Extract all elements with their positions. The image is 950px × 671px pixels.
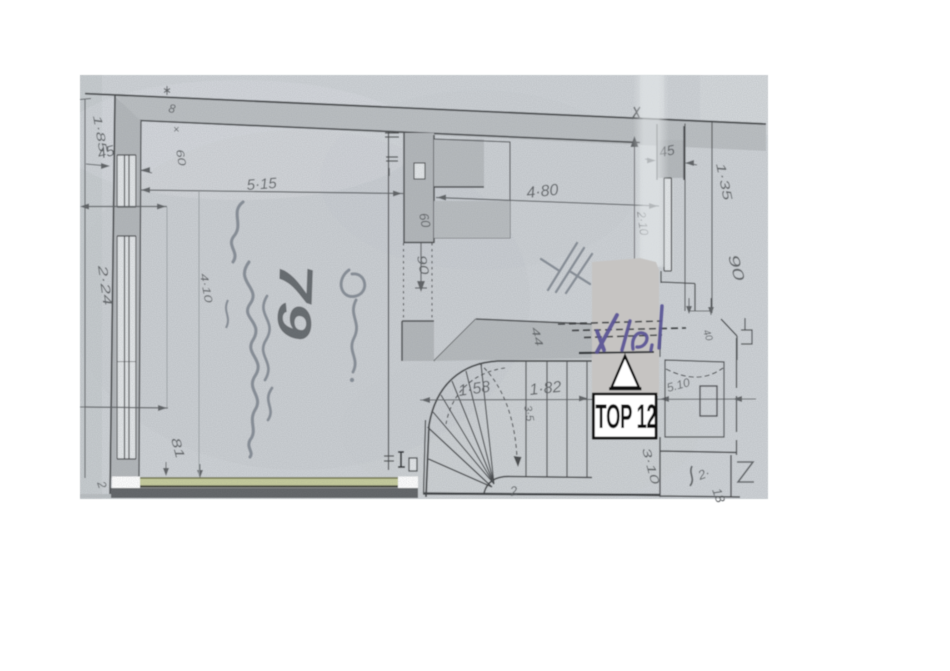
svg-text:TOP 12: TOP 12 — [596, 397, 657, 436]
